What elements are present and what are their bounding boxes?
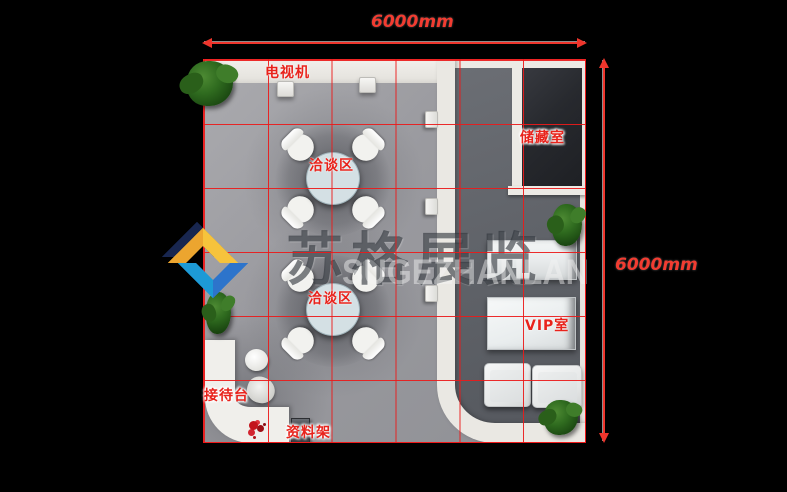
arrowhead-up-icon — [599, 58, 609, 68]
dimension-width-line — [204, 42, 585, 44]
label-reception-desk: 接待台 — [204, 388, 249, 404]
dimension-height-line — [603, 60, 605, 441]
label-meeting-area-2: 洽谈区 — [308, 291, 353, 307]
company-logo-watermark — [158, 218, 268, 313]
dimension-width-value: 6000mm — [371, 12, 454, 32]
label-literature-rack: 资料架 — [286, 425, 331, 441]
label-storage-room: 储藏室 — [520, 130, 565, 146]
arrowhead-down-icon — [599, 433, 609, 443]
arrowhead-right-icon — [577, 38, 587, 48]
label-vip-room: VIP室 — [525, 318, 569, 334]
dimension-height-value: 6000mm — [615, 255, 698, 275]
label-meeting-area-1: 洽谈区 — [309, 158, 354, 174]
booth-floorplan-render: 电视机 洽谈区 洽谈区 储藏室 VIP室 接待台 资料架 苏格展览 SUGEZH… — [0, 0, 787, 492]
label-tv: 电视机 — [265, 65, 310, 81]
arrowhead-left-icon — [202, 38, 212, 48]
